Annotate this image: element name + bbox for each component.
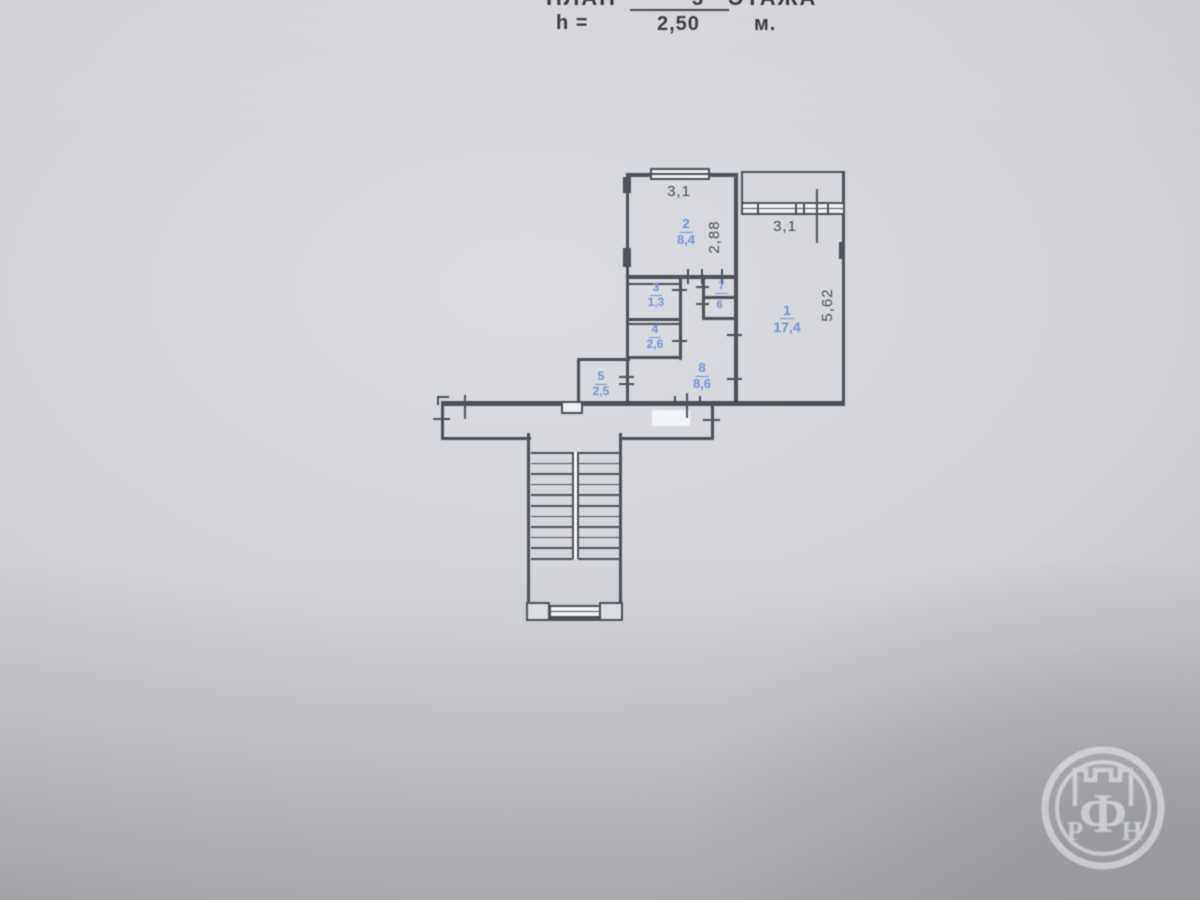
stairwell-window <box>549 605 601 618</box>
wall-segment <box>626 356 682 359</box>
room-number: 3 <box>650 281 663 296</box>
room-number: 5 <box>595 370 608 385</box>
wall-pier <box>839 242 845 259</box>
dimension-tick <box>619 376 634 378</box>
watermark-letter-f: Ф <box>1079 783 1127 845</box>
dimension-tick <box>619 383 634 385</box>
dimension-tick <box>464 395 466 419</box>
dimension-tick <box>699 396 701 404</box>
room-number: 4 <box>649 323 662 338</box>
wall-segment <box>702 317 736 320</box>
wall-segment <box>437 396 439 405</box>
balcony-wall <box>741 171 845 173</box>
dimension-room1-depth: 5,62 <box>819 283 835 327</box>
stair-tread <box>578 558 620 560</box>
dimension-kitchen-width: 3,1 <box>662 183 696 200</box>
wall-segment <box>577 358 630 361</box>
photo-of-floor-plan-document: { "header": { "title_left": "ПЛАН", "flo… <box>0 0 1200 900</box>
stair-tread <box>531 463 573 465</box>
window-divider <box>803 204 805 213</box>
dimension-tick <box>727 334 742 336</box>
watermark-logo: Ф Р Н <box>1039 744 1167 872</box>
room-number: 8 <box>695 361 708 377</box>
landing-wall <box>441 401 444 440</box>
room-number: 2 <box>679 217 692 233</box>
stair-tread <box>578 526 620 528</box>
room-label-2: 2 8,4 <box>668 217 704 248</box>
floor-plan: 3,1 2,88 3,1 5,62 1 17,4 2 8,4 3 1,3 4 2… <box>0 0 1200 900</box>
stair-tread <box>578 463 620 465</box>
wall-segment <box>626 173 629 404</box>
stair-tread <box>531 547 573 549</box>
dimension-kitchen-depth: 2,88 <box>706 215 722 259</box>
stair-tread <box>578 494 620 496</box>
wall-segment <box>734 173 738 405</box>
room-label-6: 6 <box>711 299 728 312</box>
window-divider <box>827 204 829 213</box>
room-label-8: 8 8,6 <box>684 361 720 392</box>
stair-tread <box>578 452 620 454</box>
balcony-wall <box>741 171 743 204</box>
stair-tread <box>531 516 573 518</box>
watermark-letter-r: Р <box>1067 816 1084 846</box>
balcony-window <box>741 202 845 215</box>
dimension-tick <box>687 269 689 284</box>
room-number: 1 <box>780 302 794 319</box>
stair-tread <box>531 537 573 539</box>
wall-pier <box>623 248 631 267</box>
landing-wall <box>620 437 714 440</box>
wall-pier <box>526 602 550 621</box>
dimension-tick <box>672 289 687 291</box>
stair-tread <box>531 558 573 560</box>
room-number: 7 <box>715 280 727 294</box>
room-area: 2,6 <box>639 338 671 352</box>
wall-segment <box>577 358 580 405</box>
stair-tread <box>578 505 620 507</box>
dimension-tick <box>686 393 688 418</box>
dimension-tick <box>703 419 720 421</box>
stair-tread <box>578 547 620 549</box>
dimension-tick <box>674 396 676 404</box>
kitchen-window <box>650 168 710 180</box>
stair-tread <box>531 494 573 496</box>
stair-tread <box>531 473 573 475</box>
landing-wall <box>441 437 531 440</box>
stair-tread <box>531 526 573 528</box>
stair-tread <box>531 452 573 454</box>
stair-tread <box>531 484 573 486</box>
wall-segment <box>441 401 845 406</box>
wall-pier <box>623 177 631 193</box>
stairwell-wall <box>527 433 530 621</box>
room-label-5: 5 2,5 <box>585 370 617 399</box>
room-area: 1,3 <box>640 296 672 310</box>
room-label-7: 7 <box>713 280 730 294</box>
entrance-door-recess <box>561 403 583 414</box>
room-area: 2,5 <box>585 385 617 399</box>
room-area: 8,4 <box>668 233 704 248</box>
stair-tread <box>578 473 620 475</box>
wall-pier <box>599 602 623 621</box>
room-label-3: 3 1,3 <box>640 281 672 310</box>
room-number: 6 <box>713 299 725 312</box>
room-label-4: 4 2,6 <box>639 323 671 352</box>
stair-tread <box>578 516 620 518</box>
dimension-tick <box>672 340 687 342</box>
window-divider <box>795 204 797 213</box>
whiteout-patch <box>652 410 690 426</box>
stair-tread <box>578 537 620 539</box>
room-area: 17,4 <box>766 319 808 335</box>
stair-tread <box>578 484 620 486</box>
dimension-tick <box>696 303 709 305</box>
dimension-tick <box>696 286 709 288</box>
dimension-tick <box>701 269 703 284</box>
dimension-loggia-width: 3,1 <box>768 218 802 235</box>
dimension-tick <box>433 418 450 420</box>
stair-tread <box>531 505 573 507</box>
room-label-1: 1 17,4 <box>766 302 808 335</box>
watermark-letter-n: Н <box>1121 816 1142 846</box>
room-area: 8,6 <box>684 377 720 392</box>
wall-segment <box>626 318 682 321</box>
dimension-tick <box>816 189 818 243</box>
dimension-tick <box>727 378 742 380</box>
window-divider <box>757 204 759 213</box>
